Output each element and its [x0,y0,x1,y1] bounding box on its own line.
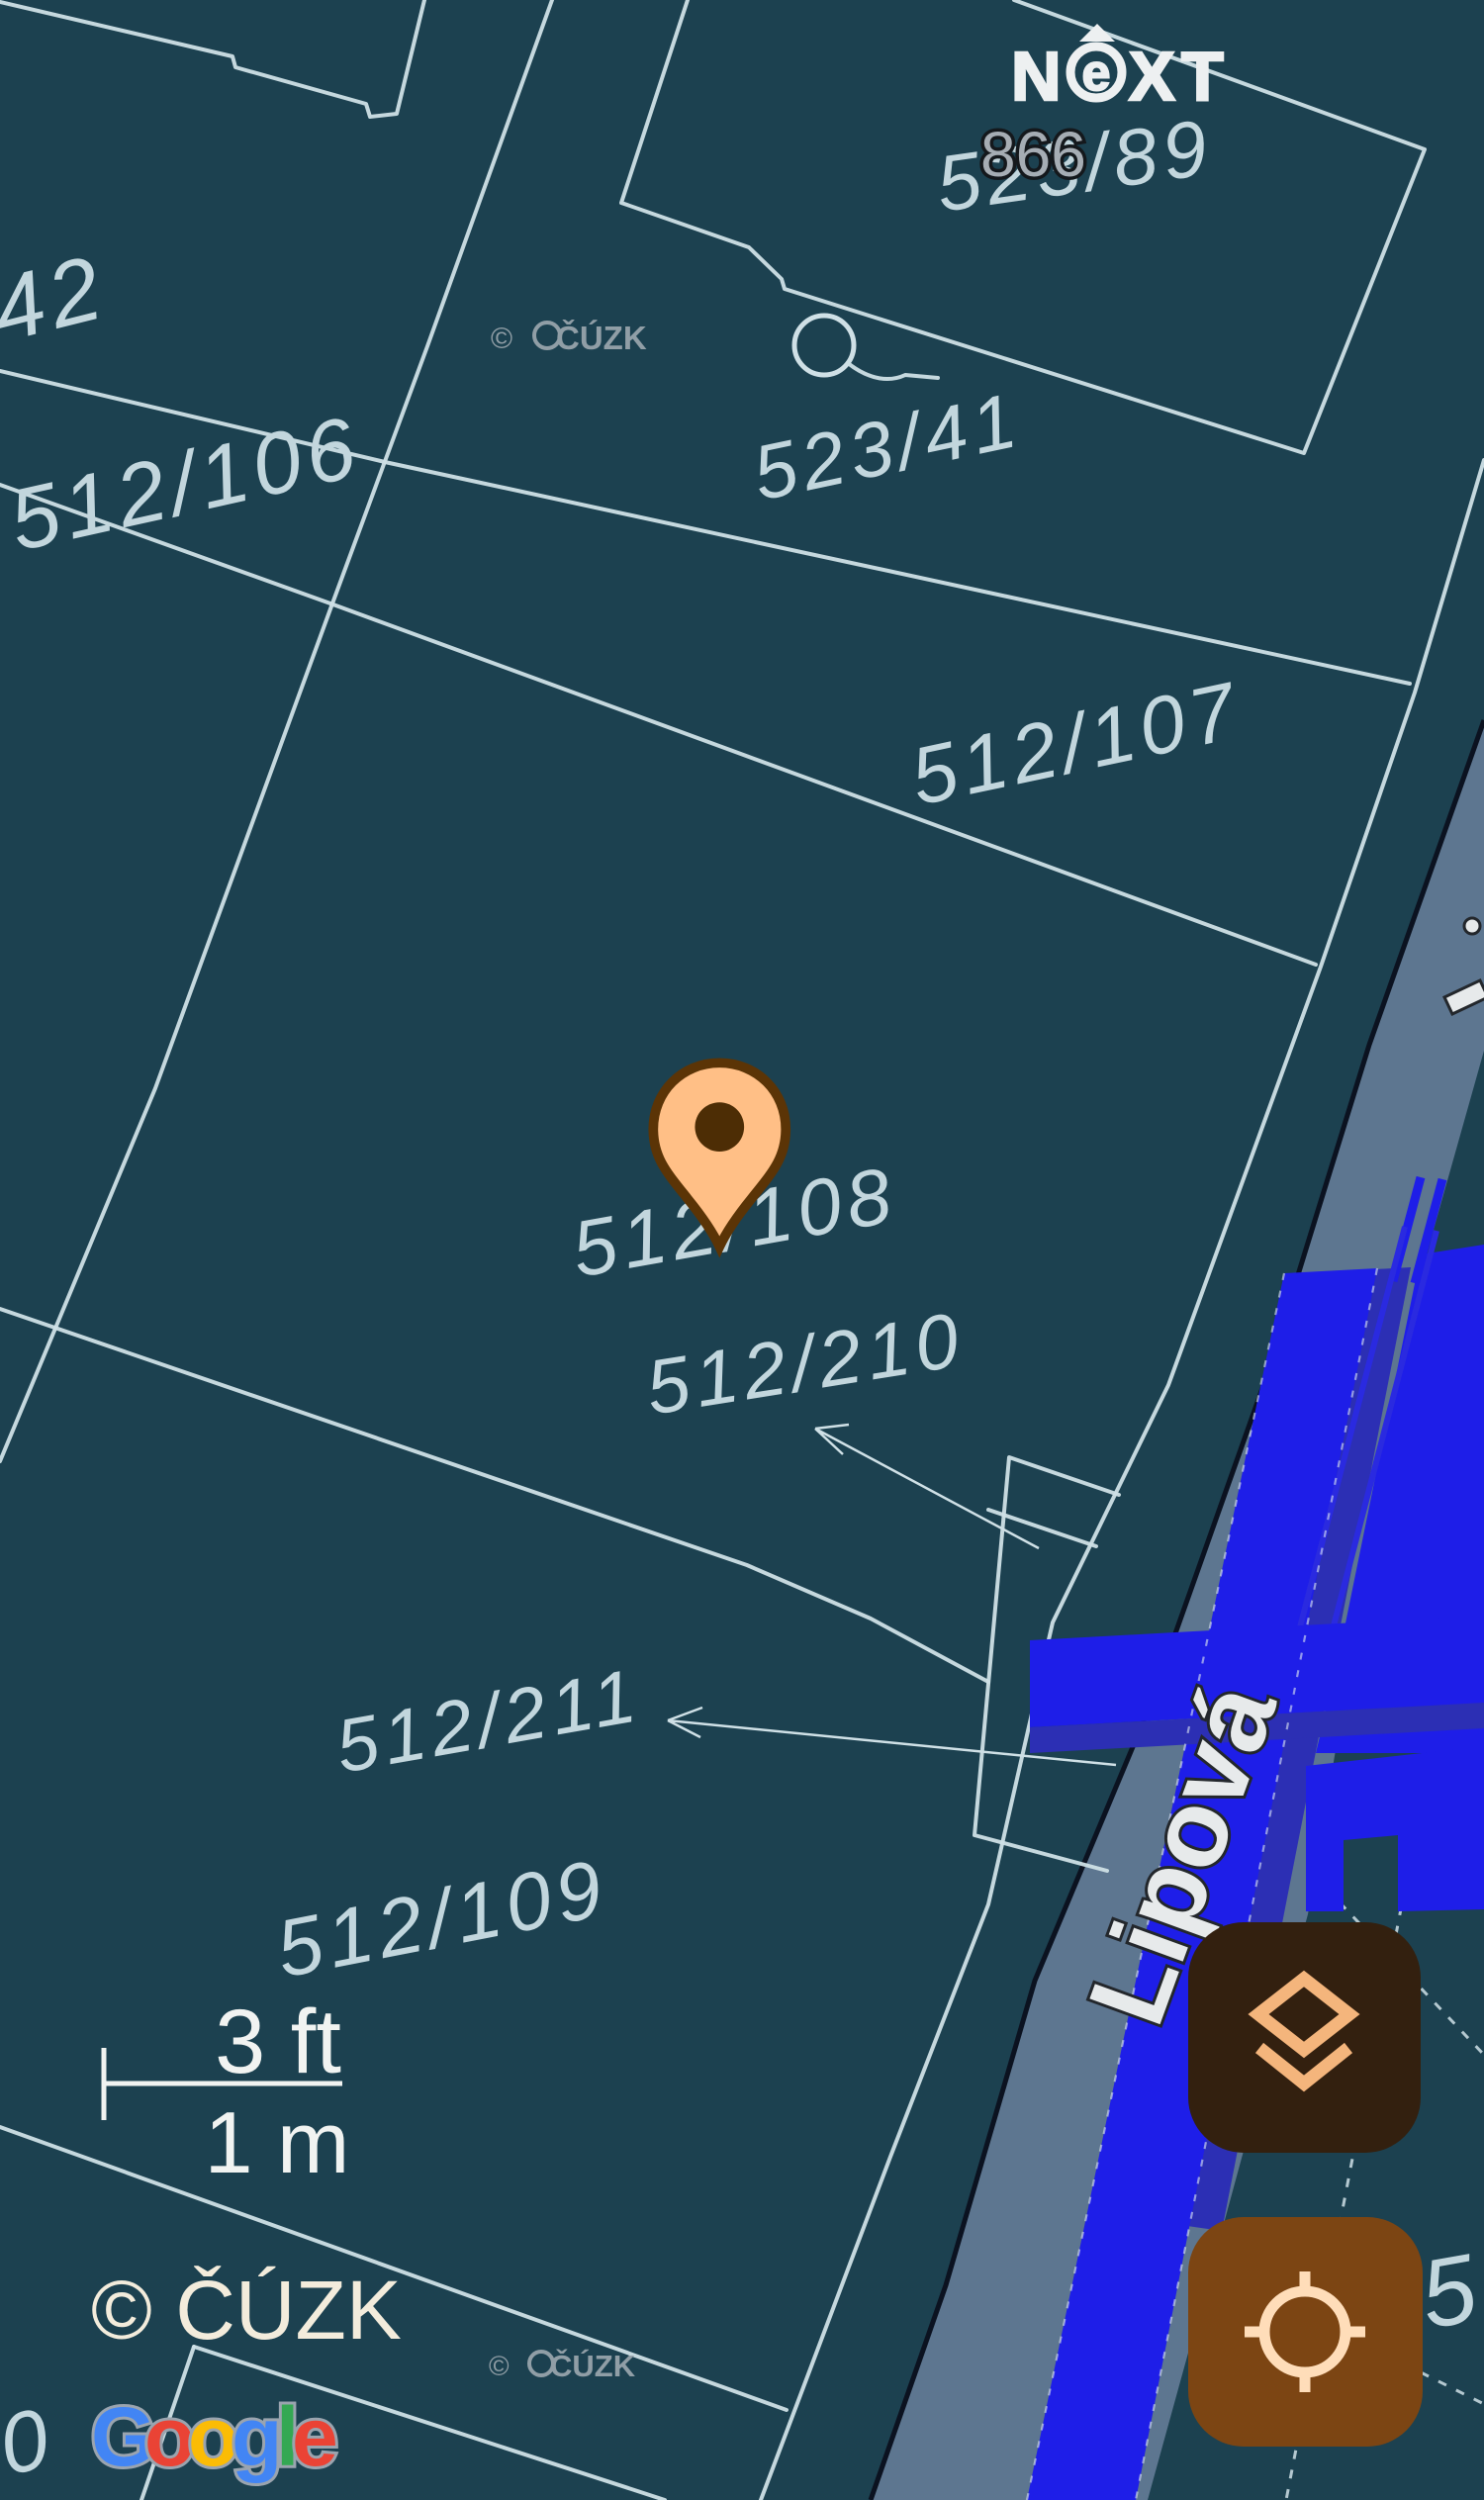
svg-text:ČÚZK: ČÚZK [556,319,647,356]
svg-text:e: e [292,2390,338,2483]
svg-text:3 ft: 3 ft [215,1991,341,2092]
svg-text:©: © [489,2351,510,2381]
svg-text:© ČÚZK: © ČÚZK [91,2264,402,2357]
svg-text:ČÚZK: ČÚZK [550,2348,636,2383]
svg-text:©: © [491,323,512,355]
svg-text:1 m: 1 m [205,2093,350,2191]
svg-text:g: g [232,2390,282,2483]
svg-text:866: 866 [980,119,1086,190]
svg-text:X: X [1129,38,1175,115]
svg-text:T: T [1181,38,1224,115]
svg-text:e: e [1082,45,1111,102]
svg-text:N: N [1011,38,1062,115]
